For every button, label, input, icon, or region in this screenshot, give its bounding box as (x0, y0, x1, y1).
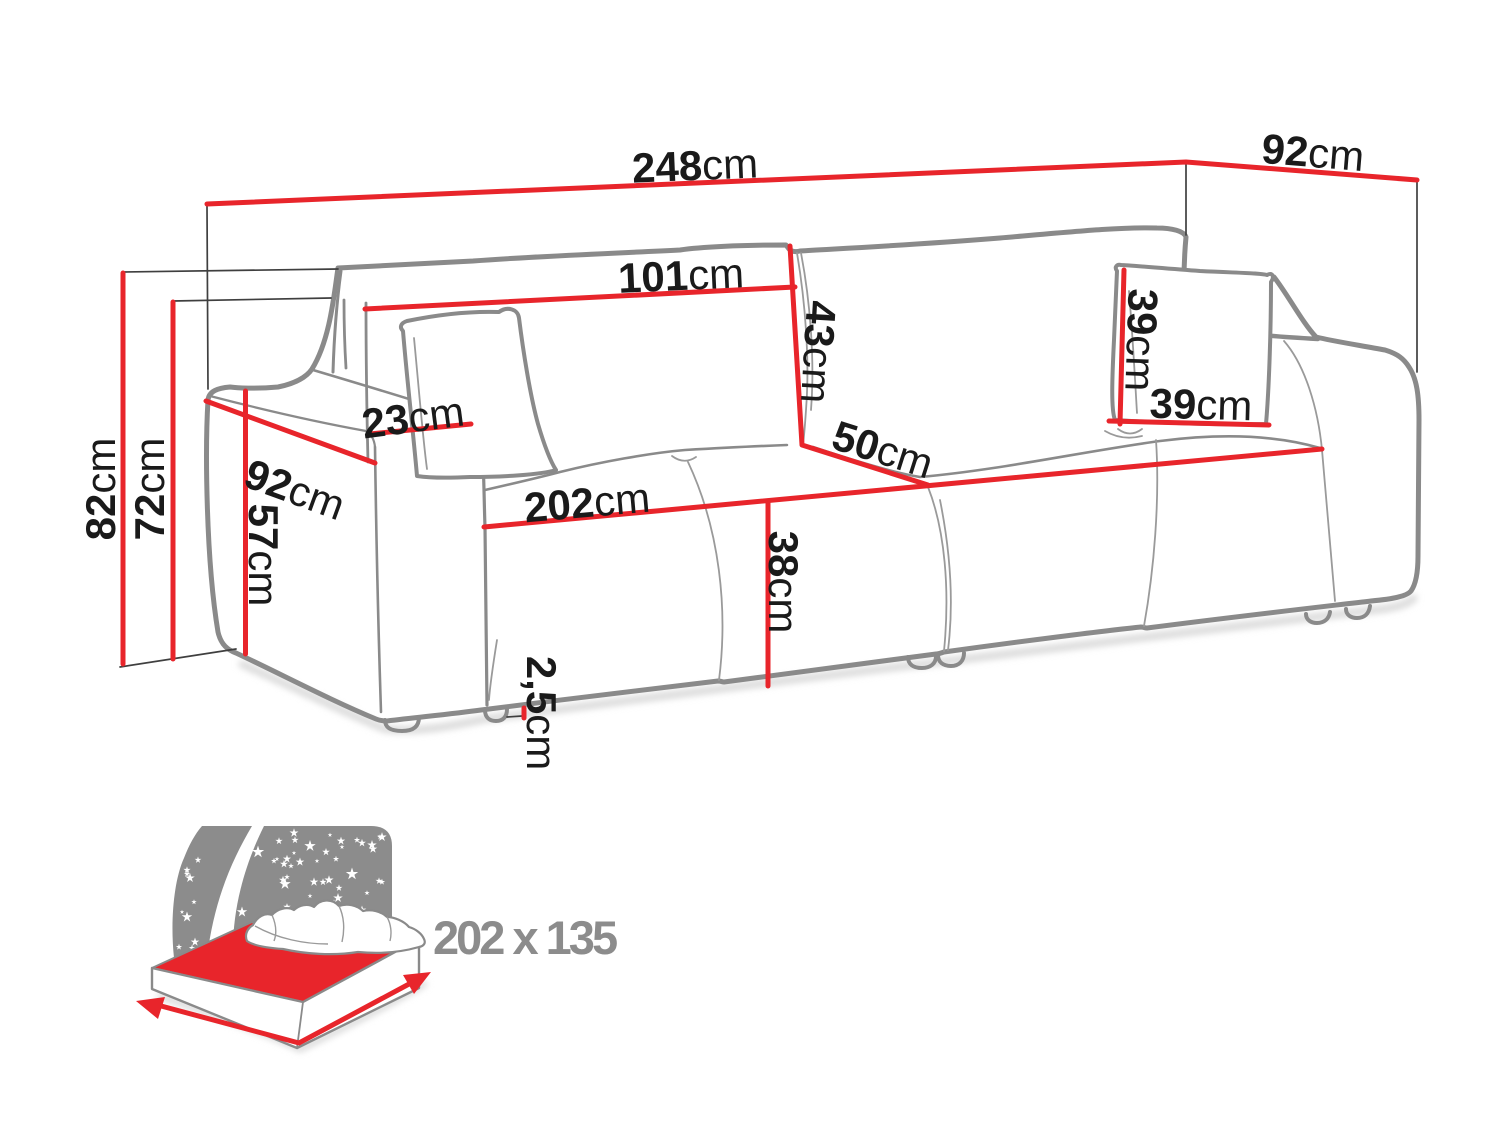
svg-text:39cm: 39cm (1149, 380, 1253, 430)
svg-text:101cm: 101cm (617, 249, 745, 302)
svg-text:202cm: 202cm (522, 474, 652, 532)
svg-text:39cm: 39cm (1116, 288, 1167, 392)
svg-text:2,5cm: 2,5cm (518, 656, 565, 770)
svg-text:92cm: 92cm (1260, 125, 1366, 180)
svg-text:57cm: 57cm (240, 504, 287, 607)
svg-text:50cm: 50cm (827, 412, 939, 488)
svg-text:202 x 135: 202 x 135 (433, 911, 617, 964)
svg-text:72cm: 72cm (126, 438, 173, 541)
svg-text:82cm: 82cm (77, 438, 124, 541)
svg-text:38cm: 38cm (760, 531, 807, 634)
svg-text:43cm: 43cm (792, 299, 845, 404)
svg-text:248cm: 248cm (631, 139, 759, 191)
